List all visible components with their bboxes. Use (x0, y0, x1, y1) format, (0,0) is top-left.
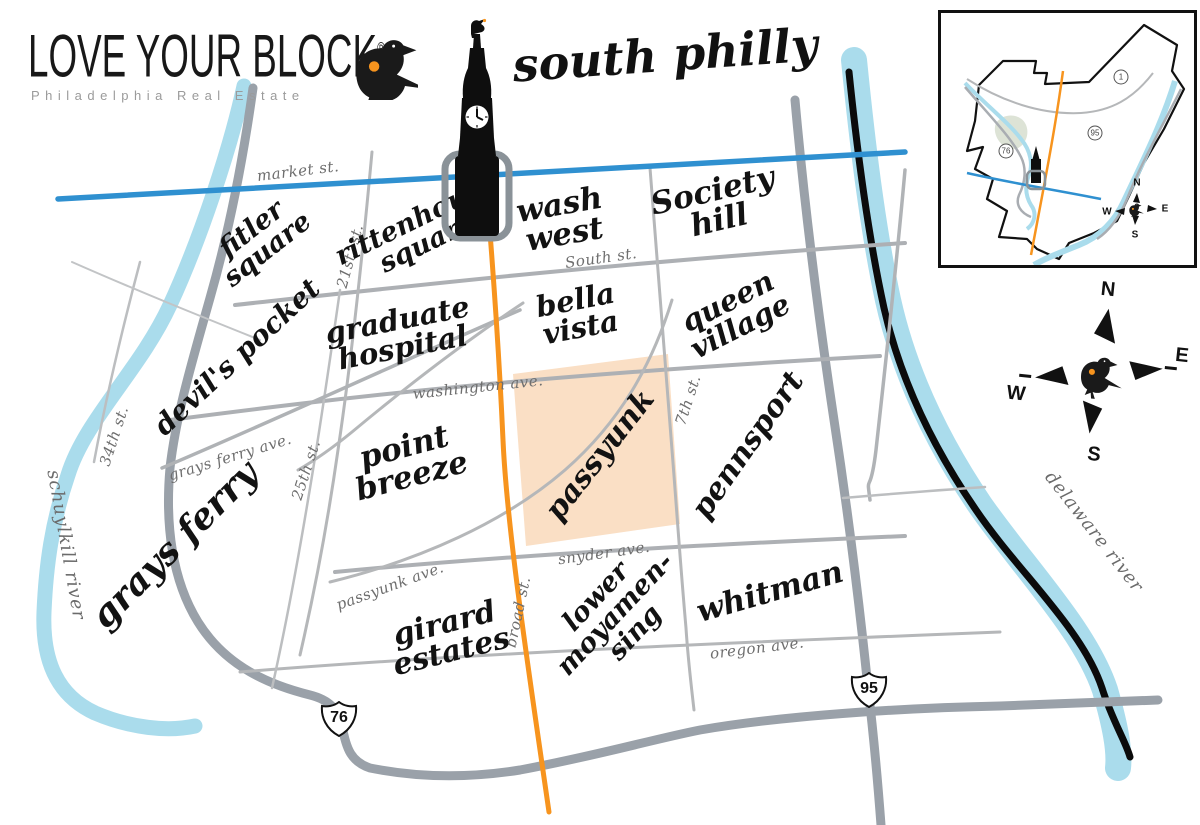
brand-tagline: Philadelphia Real Estate (31, 88, 305, 103)
inset-compass-west-label: W (1102, 207, 1111, 218)
i95-shield: 95 (850, 672, 888, 708)
compass-east-arrow (1127, 361, 1163, 382)
south-philly-map: LOVE YOUR BLOCK® Philadelphia Real Estat… (0, 0, 1200, 825)
inset-i76-marker: 76 (999, 144, 1014, 159)
compass-north-arrow (1093, 308, 1118, 344)
compass-pigeon-icon (1079, 355, 1125, 401)
philadelphia-inset-map: 1 95 76 N E S W (938, 10, 1197, 268)
compass-east-label: E (1174, 344, 1190, 368)
inset-compass-east-label: E (1162, 204, 1169, 215)
compass-south-arrow (1080, 401, 1103, 435)
brand-logo: LOVE YOUR BLOCK® Philadelphia Real Estat… (28, 24, 428, 114)
pigeon-logo-icon (340, 16, 418, 100)
neighborhood-label-bella-vista: bellavista (534, 279, 623, 350)
i95-number: 95 (850, 680, 888, 698)
inset-route-1-marker: 1 (1114, 70, 1129, 85)
compass-south-label: S (1086, 443, 1102, 467)
inset-compass-south-label: S (1132, 230, 1139, 241)
compass-west-arrow (1035, 364, 1071, 385)
inset-compass-north-label: N (1133, 178, 1140, 189)
neighborhood-label-wash-west: washwest (514, 183, 610, 258)
inset-i95-marker: 95 (1088, 126, 1103, 141)
i76-number: 76 (320, 709, 358, 727)
compass-west-label: W (1005, 382, 1026, 407)
city-hall-tower-icon (440, 6, 514, 246)
i76-shield: 76 (320, 701, 358, 737)
compass-north-label: N (1100, 278, 1117, 302)
schuylkill-river (44, 86, 244, 729)
